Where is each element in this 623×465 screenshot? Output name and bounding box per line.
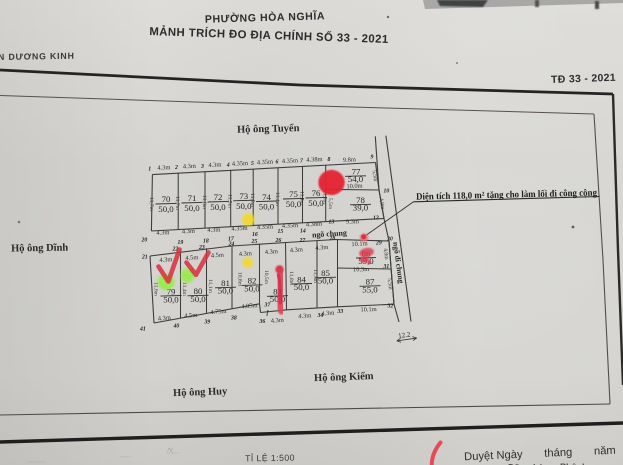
svg-text:27: 27 xyxy=(299,238,307,244)
svg-text:4.5m: 4.5m xyxy=(184,312,198,320)
svg-text:5: 5 xyxy=(251,161,254,167)
svg-text:4.35m: 4.35m xyxy=(282,222,299,230)
svg-text:4.38m: 4.38m xyxy=(306,156,323,164)
svg-text:37: 37 xyxy=(264,303,272,309)
svg-text:N DƯƠNG KINH: N DƯƠNG KINH xyxy=(0,51,75,62)
svg-text:4.75m: 4.75m xyxy=(210,308,227,316)
svg-text:76: 76 xyxy=(312,188,321,198)
svg-text:33: 33 xyxy=(337,309,344,315)
svg-text:50,0: 50,0 xyxy=(244,283,260,293)
svg-text:Hộ ông Tuyển: Hộ ông Tuyển xyxy=(237,123,300,136)
svg-text:14: 14 xyxy=(300,228,306,234)
svg-text:40: 40 xyxy=(173,324,180,330)
svg-text:4.3m: 4.3m xyxy=(158,314,172,322)
svg-text:Hộ ông Kiểm: Hộ ông Kiểm xyxy=(314,371,374,384)
svg-text:50,0: 50,0 xyxy=(294,282,310,292)
svg-text:10,5m: 10,5m xyxy=(263,270,269,285)
svg-text:6: 6 xyxy=(276,160,279,166)
svg-text:Hộ ông Huy: Hộ ông Huy xyxy=(173,386,228,399)
svg-text:4.3m: 4.3m xyxy=(265,248,278,256)
svg-text:73: 73 xyxy=(239,191,248,201)
svg-text:72: 72 xyxy=(214,192,223,202)
svg-text:11,5m: 11,5m xyxy=(312,269,318,284)
svg-text:29: 29 xyxy=(375,241,382,247)
svg-text:10.0m: 10.0m xyxy=(346,183,362,191)
svg-text:50,0: 50,0 xyxy=(318,276,334,286)
svg-text:11,6m: 11,6m xyxy=(153,282,159,297)
svg-text:20: 20 xyxy=(141,238,148,244)
svg-text:11,1m: 11,1m xyxy=(207,279,213,294)
svg-text:11,6m: 11,6m xyxy=(201,195,207,210)
svg-text:50,0: 50,0 xyxy=(184,203,200,213)
svg-text:11,8m: 11,8m xyxy=(288,271,294,286)
svg-text:4.3m: 4.3m xyxy=(239,250,252,258)
svg-text:50,0: 50,0 xyxy=(163,295,179,305)
svg-text:10,8m: 10,8m xyxy=(237,272,243,287)
svg-text:4.3m: 4.3m xyxy=(157,164,170,172)
svg-text:34: 34 xyxy=(317,313,324,319)
svg-text:12: 12 xyxy=(373,216,379,222)
svg-text:10: 10 xyxy=(384,189,390,195)
svg-text:25: 25 xyxy=(251,239,258,245)
svg-text:16: 16 xyxy=(252,232,258,238)
svg-text:19: 19 xyxy=(178,240,184,246)
svg-text:39: 39 xyxy=(204,320,211,326)
svg-text:71: 71 xyxy=(188,193,197,203)
svg-text:4.38m: 4.38m xyxy=(306,221,323,229)
svg-text:28: 28 xyxy=(329,236,336,242)
svg-text:5,5m: 5,5m xyxy=(327,198,333,210)
svg-text:39,0: 39,0 xyxy=(353,202,369,212)
svg-text:50,0: 50,0 xyxy=(218,285,234,295)
svg-text:4.3m: 4.3m xyxy=(183,163,196,171)
svg-text:TĐ 33 - 2021: TĐ 33 - 2021 xyxy=(551,72,616,86)
svg-text:11,4m: 11,4m xyxy=(299,191,305,206)
svg-text:Hộ ông Dĩnh: Hộ ông Dĩnh xyxy=(11,243,69,255)
svg-text:3: 3 xyxy=(200,164,204,170)
svg-text:50,0: 50,0 xyxy=(190,294,206,304)
svg-text:4.35m: 4.35m xyxy=(231,225,248,233)
svg-text:13: 13 xyxy=(329,220,335,226)
svg-text:11,7m: 11,7m xyxy=(174,196,180,211)
svg-text:11,5m: 11,5m xyxy=(227,194,233,209)
svg-text:4.3m: 4.3m xyxy=(159,256,172,264)
svg-text:4.3m: 4.3m xyxy=(290,246,303,254)
svg-text:4.85m: 4.85m xyxy=(241,302,258,310)
svg-text:2: 2 xyxy=(174,165,178,171)
svg-text:4.5m: 4.5m xyxy=(211,252,224,260)
svg-text:4.3m: 4.3m xyxy=(315,244,328,252)
svg-text:10.1m: 10.1m xyxy=(360,306,376,314)
svg-text:11,4m: 11,4m xyxy=(181,282,187,297)
svg-text:50,0: 50,0 xyxy=(158,204,174,214)
svg-text:31: 31 xyxy=(383,264,390,270)
svg-text:4.35m: 4.35m xyxy=(232,160,249,168)
svg-text:4: 4 xyxy=(226,162,230,168)
svg-text:11,4m: 11,4m xyxy=(274,192,280,207)
svg-text:4.3m: 4.3m xyxy=(182,228,195,236)
svg-text:9.3m: 9.3m xyxy=(346,218,359,225)
svg-text:10.3m: 10.3m xyxy=(353,266,369,274)
svg-text:21: 21 xyxy=(141,255,148,261)
svg-text:15: 15 xyxy=(278,229,284,235)
svg-text:55,0: 55,0 xyxy=(362,285,378,295)
svg-text:̸X...: ̸X... xyxy=(166,445,181,456)
svg-text:TỈ LỆ 1:500: TỈ LỆ 1:500 xyxy=(245,452,295,464)
svg-text:75: 75 xyxy=(289,189,298,199)
svg-text:8: 8 xyxy=(328,157,331,163)
svg-text:24: 24 xyxy=(228,242,235,248)
svg-text:70: 70 xyxy=(162,194,171,204)
svg-text:4.3m: 4.3m xyxy=(208,161,221,169)
svg-text:4,8m: 4,8m xyxy=(382,248,389,261)
svg-text:41: 41 xyxy=(139,327,146,333)
svg-text:11,5m: 11,5m xyxy=(249,193,255,208)
svg-text:4.3m: 4.3m xyxy=(298,312,312,320)
svg-text:26: 26 xyxy=(275,238,282,244)
svg-text:50,0: 50,0 xyxy=(210,202,226,212)
svg-text:11,7m: 11,7m xyxy=(148,197,154,212)
svg-text:23: 23 xyxy=(198,245,205,251)
svg-text:4.3m: 4.3m xyxy=(271,317,285,325)
svg-text:4.35m: 4.35m xyxy=(257,159,274,167)
svg-text:4.35m: 4.35m xyxy=(282,157,299,165)
svg-text:9.8m: 9.8m xyxy=(343,156,356,164)
svg-text:4.35m: 4.35m xyxy=(257,223,274,231)
svg-text:50,0: 50,0 xyxy=(259,202,275,212)
svg-text:9: 9 xyxy=(371,155,374,161)
svg-text:18: 18 xyxy=(203,238,209,244)
svg-text:36: 36 xyxy=(259,319,266,325)
svg-text:4.3m: 4.3m xyxy=(207,226,220,234)
svg-text:4.3m: 4.3m xyxy=(156,229,169,237)
svg-text:.....: ..... xyxy=(120,449,131,459)
svg-text:32: 32 xyxy=(387,304,394,310)
svg-text:74: 74 xyxy=(262,192,271,202)
svg-text:1: 1 xyxy=(148,167,151,173)
svg-text:38: 38 xyxy=(230,316,237,322)
svg-text:........: ........ xyxy=(28,454,45,465)
